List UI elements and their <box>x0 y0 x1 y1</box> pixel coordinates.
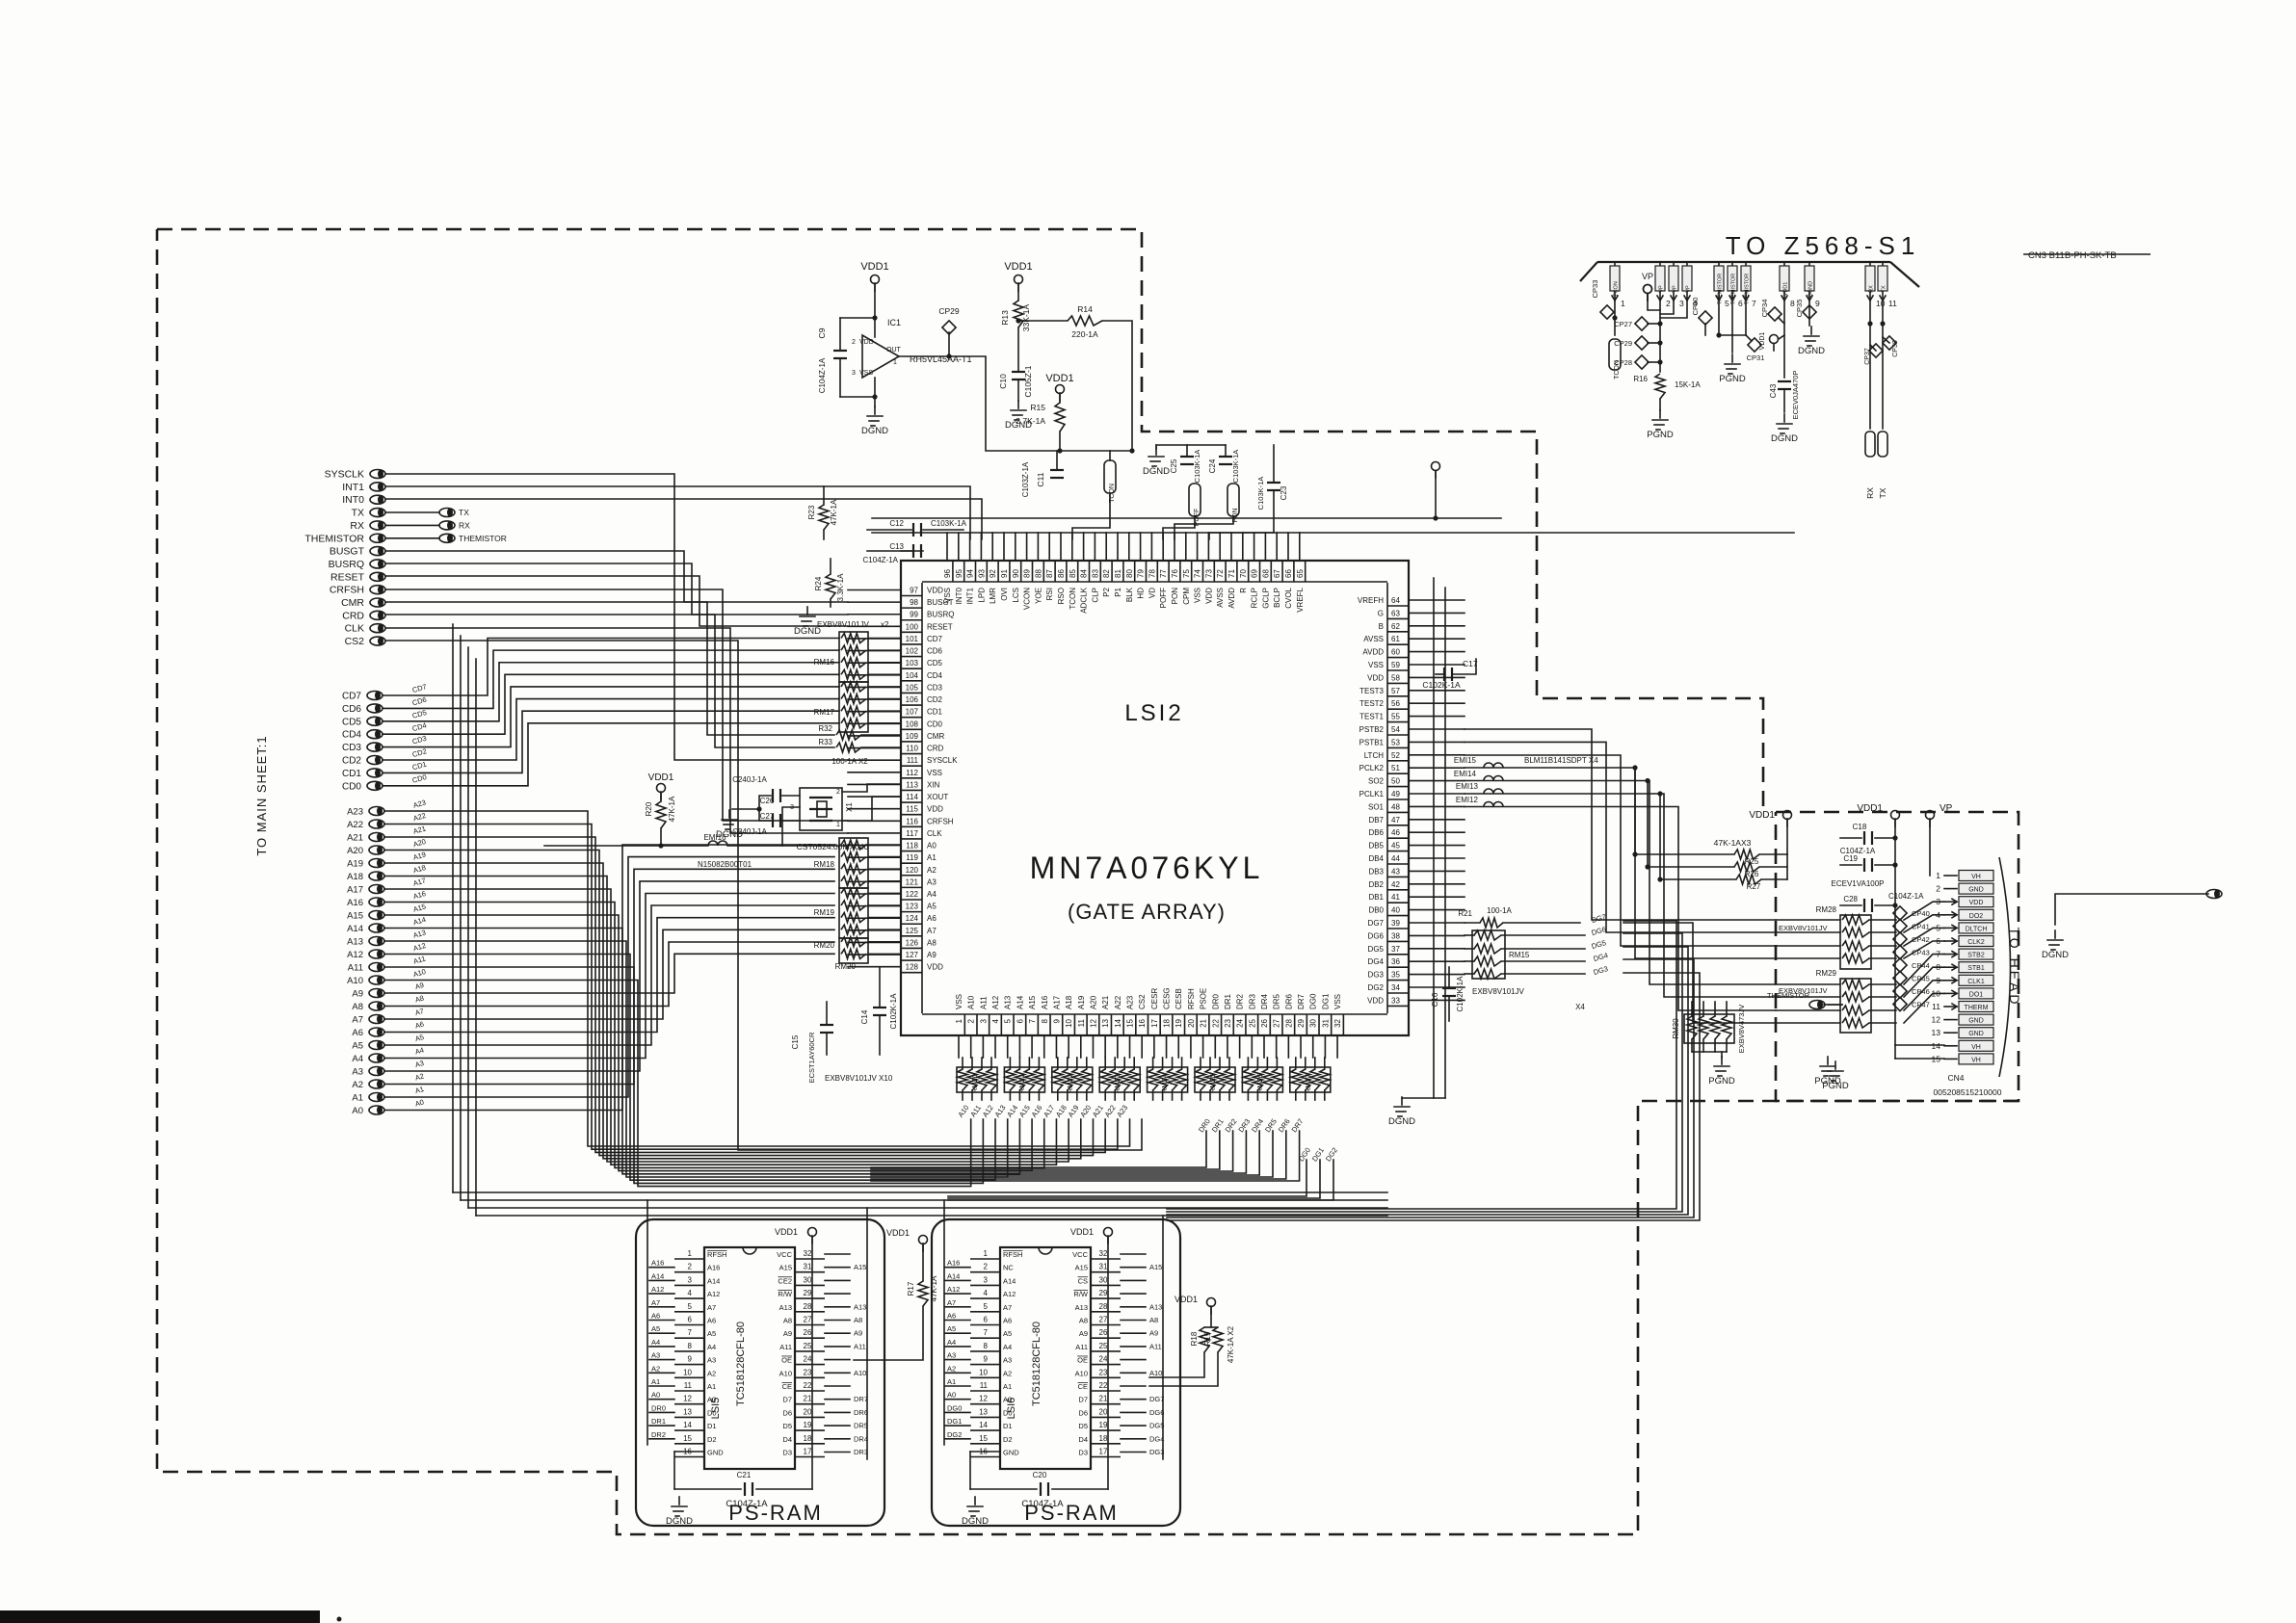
label: C102K-1A <box>889 993 898 1030</box>
label: VDD1 <box>1045 373 1073 384</box>
label: C103K-1A <box>1193 450 1201 484</box>
pin-label: CMR <box>927 732 944 741</box>
power-symbol <box>1015 275 1023 284</box>
pin-label: PCLK2 <box>1359 764 1385 772</box>
cap-ref: C21 <box>737 1471 752 1479</box>
label: 15K-1A <box>1675 380 1701 389</box>
pin-label: HD <box>1137 588 1146 599</box>
label: C14 <box>860 1009 869 1024</box>
label: CP29 <box>1614 339 1632 348</box>
port-stub <box>378 611 383 619</box>
pin-label: D6 <box>1078 1408 1088 1417</box>
pin-label: RSO <box>1057 588 1066 604</box>
pin-label: A10 <box>967 995 976 1009</box>
junction-dot <box>1657 359 1662 364</box>
pin-label: A1 <box>1003 1382 1012 1391</box>
cap-ref: C20 <box>1033 1471 1047 1479</box>
pin-label: NC <box>1003 1264 1014 1272</box>
pin-label: A14 <box>1016 995 1024 1009</box>
port-label-A21: A21 <box>347 833 363 844</box>
pin-label: VDD <box>927 963 943 972</box>
net-tag: A6 <box>947 1312 956 1321</box>
power-symbol <box>1207 1298 1216 1307</box>
label: ECST1AY60CR <box>807 1032 816 1083</box>
net-tag: DR2 <box>1224 1117 1239 1134</box>
port-stub <box>378 624 383 633</box>
net-tag: A20 <box>412 837 427 849</box>
pin-label: D2 <box>1003 1435 1013 1444</box>
head-pin-label: DO1 <box>1969 991 1984 998</box>
pin-number: 5 <box>1004 1018 1013 1023</box>
label: RM24 <box>1160 1074 1169 1093</box>
net-tag: A22 <box>412 811 427 823</box>
pin-label: RESET <box>927 622 953 631</box>
power-symbol <box>871 275 880 284</box>
pin-number: 1 <box>984 1249 989 1258</box>
label: C103K-1A <box>931 519 967 528</box>
ground-label: DGND <box>666 1516 693 1527</box>
port-label-A22: A22 <box>347 820 363 830</box>
testpoint-diamond <box>1635 317 1649 330</box>
net-tag: DG3 <box>1593 964 1609 977</box>
pin-number: 50 <box>1391 777 1400 786</box>
pin-number: 32 <box>1099 1249 1108 1258</box>
label: RM30 <box>1672 1018 1680 1039</box>
net-tag: A19 <box>1067 1104 1081 1119</box>
port-stub <box>377 1041 383 1050</box>
port-stub <box>375 769 381 777</box>
label: ECEV1VA100P <box>1832 879 1885 888</box>
port-label-BUSGT: BUSGT <box>330 546 365 558</box>
pin-label: CESR <box>1150 988 1159 1009</box>
pin-label: D0 <box>1003 1408 1013 1417</box>
net-tag: A2 <box>947 1364 956 1373</box>
net-tag: A18 <box>1054 1104 1069 1119</box>
pin-label: PSTB1 <box>1359 738 1385 746</box>
pin-label: CE2 <box>778 1276 792 1285</box>
pin-number: 117 <box>906 829 918 838</box>
pin-label: POFF <box>1159 588 1168 608</box>
pin-number: 3 <box>688 1275 693 1284</box>
pin-label: DG2 <box>1368 983 1385 992</box>
pin-label: A18 <box>1065 995 1073 1009</box>
label: C24 <box>1208 458 1217 473</box>
head-pin-label: GND <box>1968 1031 1984 1037</box>
net-tag: A3 <box>651 1351 660 1360</box>
pin-label: LCS <box>1012 588 1020 603</box>
wire <box>384 825 1118 1150</box>
pin-label: A22 <box>1114 995 1122 1009</box>
net-tag: A0 <box>651 1391 660 1400</box>
scan-artifact-bar <box>0 1610 320 1623</box>
net-tag: DG7 <box>1149 1395 1164 1403</box>
pin-label: DR7 <box>1297 993 1306 1009</box>
net-tag: A16 <box>412 889 427 901</box>
port-label-TX: TX <box>352 508 364 519</box>
pin-number: 52 <box>1391 751 1400 760</box>
pin-number: 84 <box>1080 569 1089 578</box>
head-title: TO HEAD <box>2007 928 2022 1008</box>
pin-label: R/W <box>778 1290 793 1298</box>
testpoint-label: CP46 <box>1912 987 1930 996</box>
testpoint-label: CP44 <box>1912 961 1930 970</box>
pin-number: 34 <box>1391 983 1400 992</box>
label: C25 <box>1170 458 1178 473</box>
label: R27 <box>1747 882 1761 891</box>
pin-number: 23 <box>1224 1018 1232 1027</box>
net-tag: A7 <box>414 1007 425 1017</box>
pin-number: 1 <box>1621 299 1625 308</box>
wire <box>918 1281 928 1306</box>
pin-label: OE <box>1077 1356 1088 1365</box>
pin-number: 3 <box>984 1275 989 1284</box>
net-tag: A12 <box>981 1104 995 1119</box>
pin-number: 115 <box>906 805 918 814</box>
label: 3 <box>852 370 856 377</box>
pin-number: 118 <box>906 842 918 851</box>
head-pin-label: CLK1 <box>1967 979 1985 985</box>
pin-label: A3 <box>1003 1356 1012 1365</box>
pin-label: A6 <box>927 914 937 923</box>
pin-number: 28 <box>1099 1302 1108 1311</box>
pin-label: A7 <box>927 927 937 935</box>
net-tag: A11 <box>968 1104 983 1119</box>
net-tag: CD6 <box>411 695 428 708</box>
pin-label: AVDD <box>1227 588 1236 609</box>
port-stub <box>447 509 453 517</box>
head-pin-label: VDD <box>1969 900 1984 906</box>
pin-label: A10 <box>1075 1369 1088 1377</box>
label: BLM11B141SDPT X4 <box>1524 756 1598 765</box>
wire <box>1842 1006 1869 1015</box>
pin-label: BUSRQ <box>927 611 954 619</box>
net-tag: A12 <box>412 941 427 953</box>
pin-number: 65 <box>1296 569 1305 578</box>
port-label-RX: RX <box>350 520 364 532</box>
label: VDD1 <box>886 1228 910 1238</box>
label: 47K-1A <box>930 1275 938 1301</box>
pin-number: 9 <box>984 1355 989 1364</box>
label: 47K-1A X2 <box>1227 1325 1235 1363</box>
net-tag: CD5 <box>411 708 428 720</box>
port-label-A18: A18 <box>347 872 363 882</box>
pin-label: DB5 <box>1368 842 1384 851</box>
net-tag: A2 <box>651 1364 660 1373</box>
pin-number: 30 <box>804 1275 812 1284</box>
pin-label: CE <box>782 1382 792 1391</box>
label: R26 <box>1745 870 1759 878</box>
pin-label: CD5 <box>927 659 943 668</box>
port-label-THEMISTOR: THEMISTOR <box>304 533 364 544</box>
pin-label: D5 <box>782 1422 792 1430</box>
pin-number: 56 <box>1391 699 1400 708</box>
net-tag: A10 <box>854 1369 866 1377</box>
label: VDD1 <box>1004 261 1032 273</box>
z568-pin-tag-label: VP <box>1686 285 1692 293</box>
label: R14 <box>1077 304 1093 314</box>
head-pin-label: VH <box>1971 1044 1981 1051</box>
pin-number: 22 <box>1211 1018 1220 1027</box>
wire <box>1842 915 1869 925</box>
pin-number: 11 <box>684 1381 693 1390</box>
pin-label: CD6 <box>927 647 943 656</box>
wire <box>1055 403 1065 432</box>
label: R23 <box>807 505 816 519</box>
net-tag: A14 <box>947 1271 960 1280</box>
pin-label: D4 <box>782 1435 792 1444</box>
pin-label: CRD <box>927 745 944 753</box>
net-tag: DR6 <box>854 1408 868 1417</box>
pin-label: VREFH <box>1358 596 1384 605</box>
pin-number: 88 <box>1034 569 1042 578</box>
pin-number: 9 <box>1052 1018 1061 1023</box>
pin-number: 28 <box>1284 1018 1293 1027</box>
pin-label: DR1 <box>1224 993 1232 1009</box>
wire <box>1580 262 1597 281</box>
pin-label: DR0 <box>1211 993 1220 1009</box>
power-symbol <box>1432 462 1440 471</box>
pin-number: 21 <box>1200 1018 1208 1027</box>
pin-label: A7 <box>707 1303 716 1312</box>
pin-number: 17 <box>1099 1448 1108 1456</box>
pin-number: 112 <box>906 769 918 777</box>
net-tag: CD4 <box>411 720 428 733</box>
wire <box>1842 980 1869 989</box>
pin-label: A14 <box>1003 1276 1016 1285</box>
pin-label: A4 <box>707 1343 716 1351</box>
pin-number: 1 <box>688 1249 693 1258</box>
net-tag: A10 <box>956 1104 970 1119</box>
pin-label: CESG <box>1163 987 1172 1009</box>
pin-label: VSS <box>1368 661 1384 669</box>
wire <box>1842 954 1869 963</box>
pin-number: 21 <box>1099 1395 1108 1403</box>
wire <box>1474 930 1501 940</box>
ram-kind-label: PS-RAM <box>1024 1501 1119 1525</box>
pin-label: GCLP <box>1261 588 1270 609</box>
port-label-A20: A20 <box>347 846 363 856</box>
net-tag: A4 <box>651 1338 660 1347</box>
pin-label: CS2 <box>1138 994 1147 1009</box>
label: EMI13 <box>1456 782 1479 791</box>
wire <box>384 918 834 1033</box>
pin-label: A2 <box>927 866 937 875</box>
pin-label: A9 <box>783 1329 792 1338</box>
net-tag: A1 <box>651 1377 660 1386</box>
pin-label: A6 <box>1003 1317 1012 1325</box>
port-stub <box>378 572 383 581</box>
pin-label: A10 <box>779 1369 792 1377</box>
pin-label: CD1 <box>927 708 943 717</box>
pin-label: A0 <box>927 842 937 851</box>
pin-label: RFSH <box>707 1250 726 1259</box>
pin-label: DB6 <box>1368 828 1384 837</box>
pin-number: 6 <box>984 1316 989 1324</box>
wire <box>1243 1069 1253 1090</box>
label: EMI15 <box>1454 756 1477 765</box>
label: RM19 <box>814 908 835 917</box>
pin-label: G <box>1378 609 1384 617</box>
label: RM17 <box>814 708 835 717</box>
pin-label: A14 <box>707 1276 720 1285</box>
port-label-CRD: CRD <box>342 610 364 621</box>
wire <box>854 1306 923 1360</box>
z568-pin-tag-label: DGND <box>1808 281 1814 297</box>
port-label-CD0: CD0 <box>342 781 361 792</box>
port-stub <box>377 1054 383 1062</box>
pin-number: 63 <box>1391 609 1400 617</box>
port-label-A14: A14 <box>347 924 363 934</box>
head-pin-label: STB2 <box>1967 953 1985 959</box>
pin-number: 23 <box>1099 1368 1108 1376</box>
pin-number: 77 <box>1159 569 1168 578</box>
net-tag: DG2 <box>947 1430 962 1439</box>
pin-label: A23 <box>1126 995 1135 1009</box>
port-label-INT0: INT0 <box>342 494 364 506</box>
label: C104Z-1A <box>1888 892 1924 901</box>
ground-label: DGND <box>2042 950 2069 960</box>
pin-label: DG6 <box>1368 931 1385 940</box>
port-label-A0: A0 <box>352 1106 363 1116</box>
net-tag: A15 <box>1017 1104 1032 1119</box>
label: RM28 <box>1816 905 1837 914</box>
pin-label: DB7 <box>1368 816 1384 825</box>
label: R33 <box>818 738 832 746</box>
pin-number: 29 <box>1099 1289 1108 1297</box>
port-stub <box>377 833 383 842</box>
loop-tag-RX: RX <box>459 520 470 530</box>
port-label-CS2: CS2 <box>345 636 365 647</box>
pin-number: 1 <box>955 1018 963 1023</box>
net-tag: DR4 <box>1250 1117 1265 1134</box>
pin-number: 111 <box>907 756 919 765</box>
net-tag: CD3 <box>411 734 428 746</box>
pin-number: 15 <box>1126 1018 1135 1027</box>
pin-label: CPM <box>1182 588 1191 605</box>
power-label: VDD1 <box>775 1227 798 1237</box>
pin-number: 17 <box>804 1448 812 1456</box>
pin-label: D4 <box>1078 1435 1088 1444</box>
label: CP31 <box>1747 353 1765 362</box>
pin-number: 22 <box>1099 1381 1108 1390</box>
pin-number: 22 <box>804 1381 812 1390</box>
pin-label: A17 <box>1052 995 1061 1009</box>
label: CP37 <box>1864 348 1871 365</box>
pin-label: DG0 <box>1309 993 1318 1009</box>
wire <box>384 905 834 1045</box>
net-tag: A5 <box>947 1324 956 1333</box>
pin-label: AVSS <box>1363 635 1384 643</box>
port-label-CMR: CMR <box>341 597 364 609</box>
label: CP33 <box>1591 280 1599 299</box>
wire <box>782 807 800 846</box>
wire <box>384 941 1008 1177</box>
pin-number: 5 <box>1725 299 1729 308</box>
pin-label: DR5 <box>1273 993 1281 1009</box>
junction-dot <box>1129 448 1134 453</box>
label: VDD1 <box>1857 803 1883 814</box>
pin-number: 26 <box>804 1328 812 1337</box>
pin-label: A4 <box>1003 1343 1012 1351</box>
junction-dot <box>1880 321 1885 326</box>
pin-number: 120 <box>906 866 919 875</box>
z568-pin-tag-label: RX <box>1869 285 1875 293</box>
z568-title: TO Z568-S1 <box>1726 231 1921 260</box>
pin-number: 61 <box>1391 635 1400 643</box>
wire <box>1213 1327 1223 1352</box>
port-stub <box>378 509 383 517</box>
pin-number: 58 <box>1391 673 1400 682</box>
pin-label: XOUT <box>927 793 948 801</box>
label: VSS <box>859 370 873 377</box>
pin-number: 4 <box>991 1018 1000 1023</box>
port-label-A1: A1 <box>352 1093 363 1104</box>
net-tag: CD1 <box>411 760 428 772</box>
label: C16 <box>1431 992 1439 1007</box>
wire <box>385 474 848 760</box>
schematic-page: LSI2MN7A076KYL(GATE ARRAY)97VDD98BUSGT99… <box>0 0 2296 1623</box>
pin-label: A3 <box>707 1356 716 1365</box>
wire <box>385 486 970 539</box>
label: VDD1 <box>1759 332 1766 351</box>
label: C10 <box>998 374 1008 389</box>
port-label-A19: A19 <box>347 859 363 870</box>
ground-label: DGND <box>794 626 821 637</box>
pin-number: 24 <box>1236 1018 1245 1027</box>
wire <box>2055 894 2208 925</box>
pin-number: 83 <box>1091 569 1099 578</box>
pin-number: 93 <box>977 569 986 578</box>
net-tag: DG7 <box>1591 912 1607 925</box>
net-tag: A13 <box>854 1302 866 1311</box>
pin-number: 14 <box>683 1421 692 1429</box>
pin-number: 24 <box>1099 1355 1108 1364</box>
pin-number: 16 <box>1138 1018 1147 1027</box>
label: VP <box>1642 272 1653 281</box>
pin-number: 2 <box>967 1018 976 1023</box>
pin-number: 2 <box>1936 884 1940 894</box>
pin-number: 85 <box>1069 569 1077 578</box>
label: C13 <box>889 542 904 551</box>
pin-label: XIN <box>927 780 940 789</box>
ground-label: DGND <box>962 1516 989 1527</box>
label: N15082B00T01 <box>698 860 752 869</box>
wire <box>385 576 848 626</box>
net-tag: A14 <box>1005 1104 1019 1119</box>
pin-number: 2 <box>688 1263 693 1271</box>
label: C19 <box>1843 854 1858 863</box>
head-pin-label: DO2 <box>1969 913 1984 920</box>
pin-label: D6 <box>782 1408 792 1417</box>
pin-label: VSS <box>927 769 942 777</box>
pin-label: DB0 <box>1368 906 1384 915</box>
label: 1 <box>836 822 840 828</box>
label: RM27 <box>1304 1074 1312 1093</box>
net-tag: A6 <box>651 1312 660 1321</box>
pin-label: VCC <box>777 1250 792 1259</box>
pin-label: INT1 <box>966 587 975 604</box>
junction-dot <box>1892 835 1897 840</box>
pin-number: 20 <box>804 1407 812 1416</box>
pin-number: 13 <box>1101 1018 1110 1027</box>
port-label-INT1: INT1 <box>342 482 364 493</box>
pin-number: 18 <box>804 1434 812 1443</box>
label: 100-1A <box>1487 906 1512 915</box>
pin-number: 7 <box>984 1328 989 1337</box>
ground-label: DGND <box>1798 346 1825 356</box>
pin-label: DR4 <box>1260 993 1269 1009</box>
port-label-CLK: CLK <box>345 623 364 635</box>
